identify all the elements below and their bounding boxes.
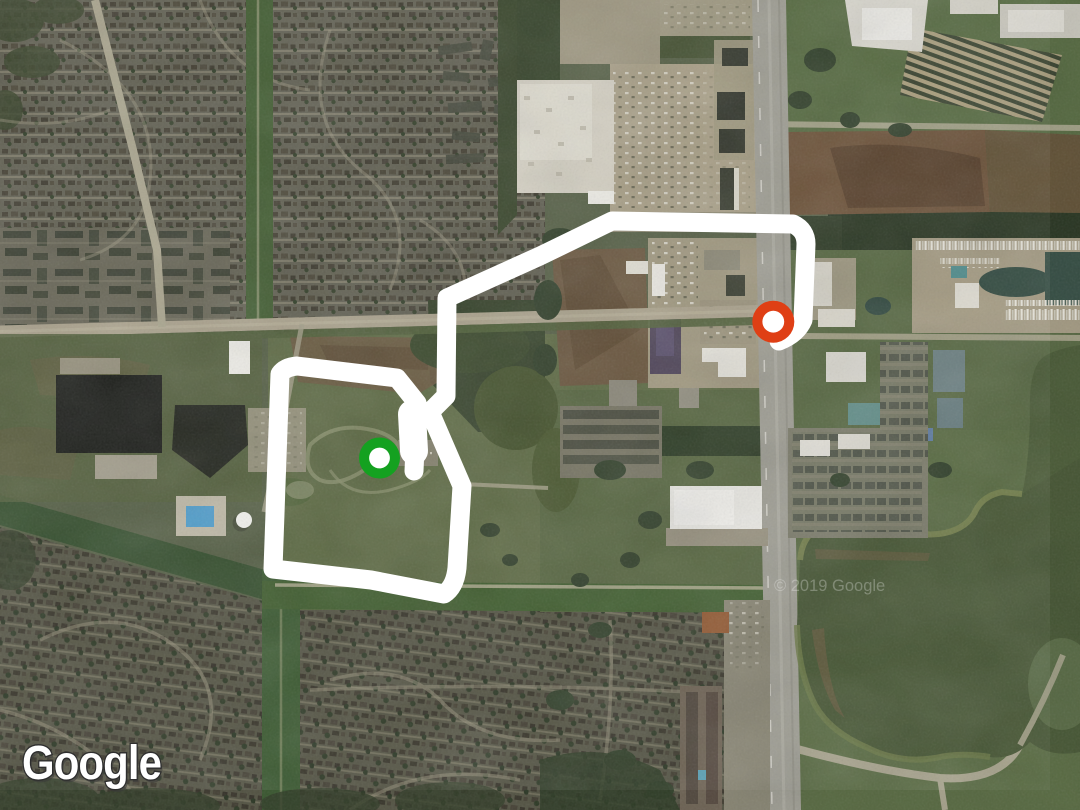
svg-text:© 2019 Google: © 2019 Google: [774, 577, 885, 595]
svg-text:Google: Google: [22, 737, 161, 790]
